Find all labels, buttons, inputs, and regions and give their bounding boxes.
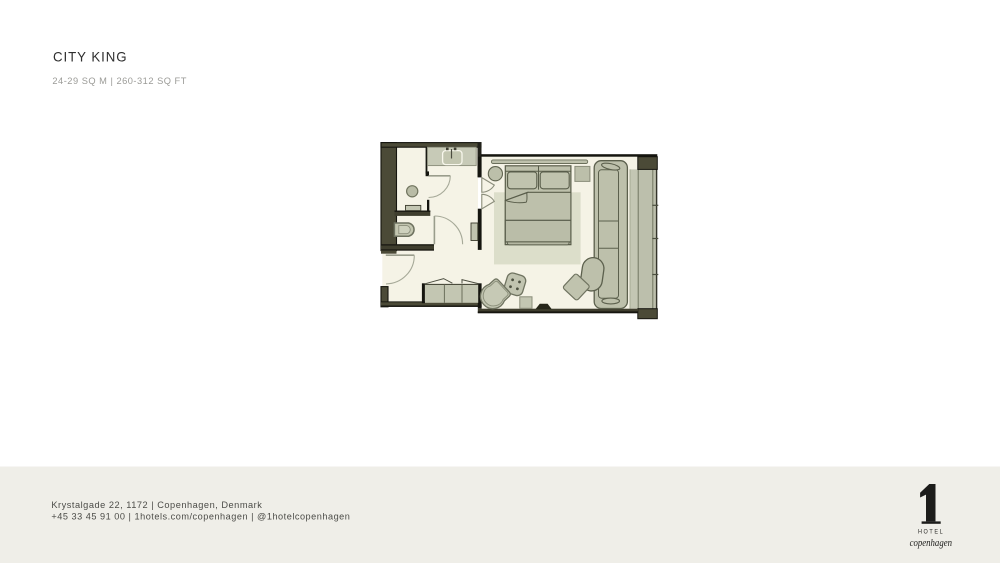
svg-text:+45 33 45 91 00 | 1hotels.com/: +45 33 45 91 00 | 1hotels.com/copenhagen… [51, 512, 350, 522]
svg-text:24-29 SQ M | 260-312 SQ FT: 24-29 SQ M | 260-312 SQ FT [52, 76, 187, 86]
svg-text:Krystalgade 22, 1172 | Copenha: Krystalgade 22, 1172 | Copenhagen, Denma… [51, 500, 262, 510]
svg-text:copenhagen: copenhagen [910, 537, 953, 549]
svg-text:CITY KING: CITY KING [53, 48, 128, 64]
svg-text:HOTEL: HOTEL [918, 529, 944, 536]
